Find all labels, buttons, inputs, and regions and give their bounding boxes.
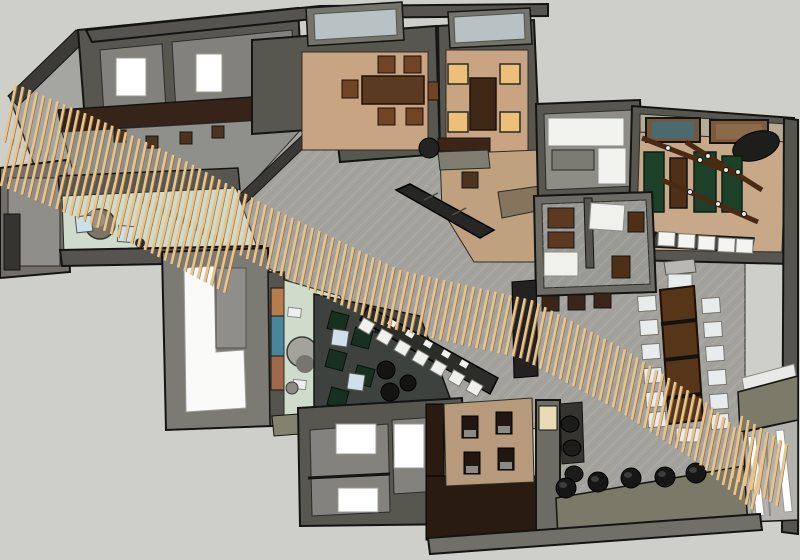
hall-table-dark bbox=[594, 293, 611, 308]
counter-stool-white bbox=[698, 236, 716, 251]
restroom-door-light bbox=[338, 488, 378, 512]
lounge-table-blue bbox=[331, 329, 349, 347]
communal-chair-white bbox=[710, 413, 729, 429]
restroom-door-light bbox=[336, 424, 376, 454]
bench-cylinder-seat bbox=[561, 416, 579, 432]
booth-room-brick-floor bbox=[444, 398, 534, 486]
wall-art-inner bbox=[652, 122, 694, 138]
beam-light bbox=[742, 212, 747, 217]
counter-stool-white bbox=[718, 238, 736, 253]
lounge-pouf bbox=[377, 361, 395, 379]
pouf-highlight bbox=[559, 482, 567, 488]
lounge-pouf bbox=[381, 383, 399, 401]
model-viewport[interactable] bbox=[0, 0, 800, 560]
communal-table-hood bbox=[664, 259, 696, 275]
meeting-chair-brown bbox=[628, 212, 644, 232]
booth-chair-seat bbox=[466, 466, 478, 473]
floor-pouf-black bbox=[655, 467, 675, 487]
rock-feature-small bbox=[286, 382, 298, 394]
corridor-table bbox=[212, 126, 224, 138]
pouf-highlight bbox=[658, 471, 666, 477]
lounge-pouf bbox=[400, 375, 416, 391]
dining-1-chair bbox=[404, 56, 421, 73]
counter-stool-white bbox=[658, 232, 676, 247]
communal-chair-white bbox=[641, 343, 660, 359]
floor-pouf-black bbox=[621, 468, 641, 488]
beam-light bbox=[724, 168, 729, 173]
beam-light bbox=[688, 190, 693, 195]
lounge-table-blue bbox=[347, 373, 365, 391]
counter-stool-white bbox=[736, 239, 754, 254]
booth-chair-seat bbox=[498, 426, 510, 433]
communal-chair-white bbox=[703, 321, 722, 337]
beam-light bbox=[716, 202, 721, 207]
skylight-2-glass bbox=[454, 13, 525, 43]
pillar-cap-cream bbox=[539, 406, 557, 430]
dining-2-chair-amber bbox=[448, 112, 468, 132]
kitchen-counter-return bbox=[598, 148, 626, 184]
corridor-table bbox=[180, 132, 192, 144]
communal-chair-white bbox=[707, 369, 726, 385]
booth-chair-seat bbox=[500, 462, 512, 469]
dining-2-table bbox=[470, 78, 496, 130]
hall-table-dark bbox=[568, 295, 585, 310]
dining-2-chair-amber bbox=[500, 64, 520, 84]
lounge-chair-green bbox=[325, 349, 347, 371]
meeting-chair-brown bbox=[612, 256, 630, 278]
restroom-door-light bbox=[394, 424, 424, 468]
beam-light bbox=[698, 158, 703, 163]
dining-1-chair bbox=[378, 56, 395, 73]
service-counter bbox=[438, 150, 490, 170]
floor-pouf-black bbox=[686, 463, 706, 483]
meeting-table-white bbox=[589, 203, 625, 231]
beam-light bbox=[706, 154, 711, 159]
dining-2-chair-amber bbox=[448, 64, 468, 84]
pouf-highlight bbox=[591, 476, 599, 482]
floor-pouf-black bbox=[556, 478, 576, 498]
round-table-black bbox=[419, 138, 439, 158]
communal-chair-white bbox=[709, 393, 728, 409]
communal-chair-white bbox=[701, 297, 720, 313]
pouf-highlight bbox=[689, 467, 697, 473]
art-mural-orange-top bbox=[271, 288, 284, 316]
dining-1-chair bbox=[406, 108, 423, 125]
upper-room-2-door bbox=[196, 54, 222, 92]
bench-cylinder-seat bbox=[563, 440, 581, 456]
dining-1-table bbox=[362, 76, 424, 104]
floor-pouf-black bbox=[588, 472, 608, 492]
communal-chair-white bbox=[639, 319, 658, 335]
floorplan-3d-render bbox=[0, 0, 800, 560]
left-room-window bbox=[4, 214, 20, 270]
gallery-bench bbox=[288, 307, 302, 317]
beam-light bbox=[736, 170, 741, 175]
meeting-table-white bbox=[544, 252, 578, 276]
service-side-table bbox=[462, 172, 478, 188]
dining-1-chair bbox=[378, 108, 395, 125]
art-mural-rust bbox=[271, 356, 284, 390]
communal-chair-white bbox=[705, 345, 724, 361]
beam-light bbox=[666, 146, 671, 151]
counter-stool-white bbox=[678, 234, 696, 249]
kitchen-steps bbox=[552, 150, 594, 170]
pouf-highlight bbox=[624, 472, 632, 478]
rock-feature-shadow bbox=[296, 355, 314, 373]
service-credenza bbox=[438, 138, 490, 151]
communal-chair-white bbox=[637, 295, 656, 311]
dining-1-chair bbox=[342, 80, 358, 98]
upper-room-1-door bbox=[116, 58, 146, 96]
espresso-surround-bottom bbox=[426, 476, 538, 538]
dining-2-chair-amber bbox=[500, 112, 520, 132]
skylight-1-glass bbox=[314, 9, 397, 40]
meeting-sofa-brown bbox=[548, 232, 574, 248]
kitchen-counter bbox=[548, 118, 624, 146]
booth-chair-seat bbox=[464, 430, 476, 437]
scene-layer bbox=[0, 0, 800, 560]
art-mural-teal bbox=[271, 316, 284, 356]
meeting-sofa-brown bbox=[548, 208, 574, 228]
